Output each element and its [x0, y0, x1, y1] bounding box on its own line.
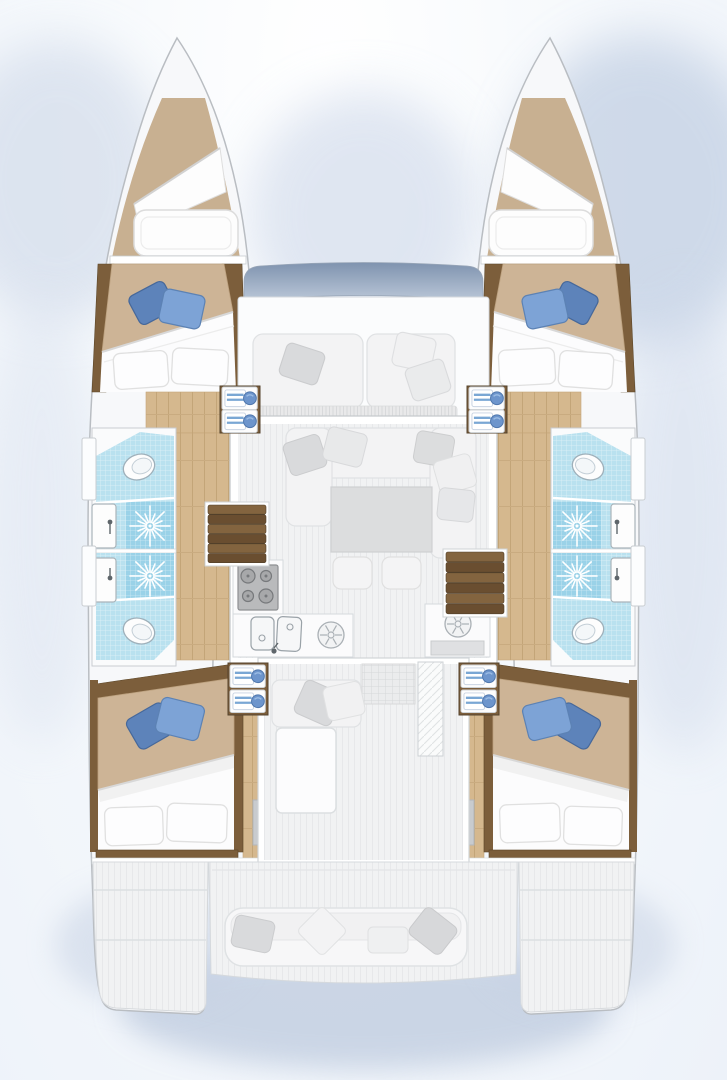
companionway-steps-port — [205, 502, 269, 566]
foredeck-seating — [253, 331, 457, 424]
pillow-white — [104, 806, 163, 846]
aft-head — [92, 553, 174, 660]
side-deck-hatch — [82, 438, 96, 500]
worktop — [431, 641, 484, 655]
salon-table — [331, 487, 432, 552]
towel-cabinet-port-forward — [220, 386, 260, 433]
bridgedeck — [205, 263, 518, 984]
shower-jet-icon — [130, 506, 170, 546]
towel-cabinet-starboard-forward — [467, 386, 507, 433]
pillow-white — [113, 350, 169, 390]
side-deck-hatch — [82, 546, 96, 606]
heads-compartments — [92, 428, 176, 666]
pillow-white — [166, 803, 227, 843]
floorplan-stage: Catamaran yacht interior layout plan — o… — [0, 0, 727, 1080]
louvered-door — [418, 662, 443, 756]
catamaran-floorplan: Catamaran yacht interior layout plan — o… — [0, 0, 727, 1080]
washbasin — [92, 504, 116, 548]
shower-jet-icon — [130, 556, 170, 596]
stove — [238, 565, 278, 610]
cockpit — [258, 658, 469, 864]
cooktop-element — [318, 622, 344, 648]
swim-platform — [93, 862, 208, 1012]
stool — [333, 557, 372, 589]
transom-bench — [225, 905, 467, 966]
grid-mat — [362, 664, 415, 704]
bulkhead-wall — [110, 256, 246, 264]
towel-cabinet-starboard-aft — [459, 663, 499, 715]
pillow-white — [322, 680, 366, 721]
salon-front-window-band — [244, 263, 483, 301]
pillow-white — [436, 487, 475, 523]
heads-divider-wall — [92, 549, 176, 553]
companionway-steps-starboard — [443, 549, 507, 617]
wood-trim — [90, 680, 98, 852]
pillow-white — [368, 927, 408, 953]
stool — [382, 557, 421, 589]
pillow-white — [171, 348, 229, 387]
aft-deck — [209, 862, 518, 983]
cockpit-table — [276, 728, 336, 813]
towel-cabinet-port-aft — [228, 663, 268, 715]
